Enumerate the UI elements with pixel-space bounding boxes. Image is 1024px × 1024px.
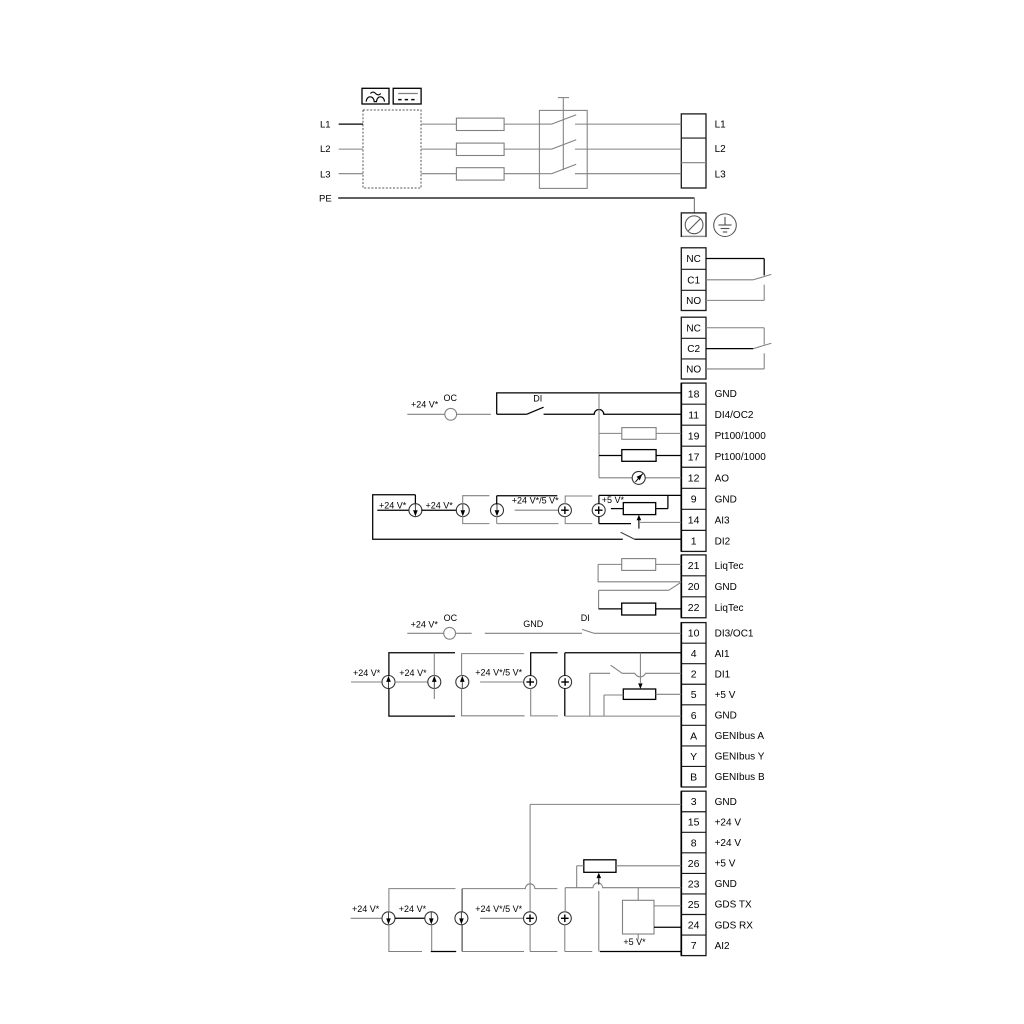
svg-text:+24 V*: +24 V* xyxy=(399,668,427,678)
svg-text:21: 21 xyxy=(688,560,700,572)
svg-text:24: 24 xyxy=(688,919,700,931)
svg-text:23: 23 xyxy=(688,878,700,890)
svg-text:GND: GND xyxy=(715,711,737,722)
svg-text:NO: NO xyxy=(686,365,701,376)
svg-text:+24 V*: +24 V* xyxy=(353,668,381,678)
svg-text:DI3/OC1: DI3/OC1 xyxy=(715,628,754,639)
svg-text:AI2: AI2 xyxy=(715,941,730,952)
svg-text:26: 26 xyxy=(688,858,700,870)
svg-text:L3: L3 xyxy=(320,169,331,180)
svg-text:4: 4 xyxy=(691,648,697,660)
svg-text:Y: Y xyxy=(690,751,697,763)
svg-text:AI3: AI3 xyxy=(715,515,730,526)
svg-text:15: 15 xyxy=(688,817,700,829)
svg-text:3: 3 xyxy=(691,796,697,808)
svg-text:NC: NC xyxy=(686,254,700,265)
svg-text:+24 V*: +24 V* xyxy=(379,500,407,510)
svg-text:Pt100/1000: Pt100/1000 xyxy=(715,452,767,463)
svg-text:GND: GND xyxy=(715,582,737,593)
svg-text:1: 1 xyxy=(691,536,697,548)
svg-text:A: A xyxy=(690,730,697,742)
svg-text:L1: L1 xyxy=(320,120,331,131)
svg-text:7: 7 xyxy=(691,940,697,952)
svg-text:OC: OC xyxy=(444,393,458,403)
svg-text:L3: L3 xyxy=(715,169,727,180)
svg-text:GND: GND xyxy=(715,494,737,505)
svg-text:2: 2 xyxy=(691,669,697,681)
svg-text:+24 V*: +24 V* xyxy=(352,904,380,914)
svg-text:12: 12 xyxy=(688,472,700,484)
svg-text:+24 V*/5 V*: +24 V*/5 V* xyxy=(475,904,522,914)
svg-text:14: 14 xyxy=(688,515,700,527)
svg-text:L2: L2 xyxy=(715,144,727,155)
svg-text:5: 5 xyxy=(691,689,697,701)
svg-text:GND: GND xyxy=(715,879,737,890)
svg-text:+24 V*: +24 V* xyxy=(411,620,439,630)
svg-text:+5 V*: +5 V* xyxy=(602,495,625,505)
svg-text:NC: NC xyxy=(686,323,700,334)
svg-text:18: 18 xyxy=(688,388,700,400)
svg-text:+5 V*: +5 V* xyxy=(623,937,646,947)
svg-text:19: 19 xyxy=(688,430,700,442)
svg-text:+24 V: +24 V xyxy=(715,818,742,829)
svg-text:GENIbus Y: GENIbus Y xyxy=(715,752,765,763)
svg-text:6: 6 xyxy=(691,710,697,722)
svg-text:+24 V*: +24 V* xyxy=(399,904,427,914)
svg-text:LiqTec: LiqTec xyxy=(715,603,744,614)
svg-text:AO: AO xyxy=(715,473,730,484)
svg-text:+24 V*/5 V*: +24 V*/5 V* xyxy=(512,496,559,506)
svg-text:+24 V*/5 V*: +24 V*/5 V* xyxy=(475,668,522,678)
svg-text:AI1: AI1 xyxy=(715,649,730,660)
svg-text:25: 25 xyxy=(688,899,700,911)
svg-text:8: 8 xyxy=(691,837,697,849)
svg-text:+5 V: +5 V xyxy=(715,859,736,870)
svg-text:GENIbus A: GENIbus A xyxy=(715,731,765,742)
svg-text:DI: DI xyxy=(581,613,590,623)
svg-text:C1: C1 xyxy=(687,275,700,286)
svg-text:10: 10 xyxy=(688,628,700,640)
svg-text:9: 9 xyxy=(691,494,697,506)
svg-text:+5 V: +5 V xyxy=(715,690,736,701)
svg-text:GDS RX: GDS RX xyxy=(715,920,754,931)
svg-text:Pt100/1000: Pt100/1000 xyxy=(715,431,767,442)
svg-text:L1: L1 xyxy=(715,120,727,131)
svg-text:+24 V*: +24 V* xyxy=(426,500,454,510)
svg-text:+24 V: +24 V xyxy=(715,838,742,849)
svg-text:+24 V*: +24 V* xyxy=(411,400,439,410)
svg-text:NO: NO xyxy=(686,296,701,307)
svg-text:22: 22 xyxy=(688,602,700,614)
svg-text:20: 20 xyxy=(688,581,700,593)
svg-text:C2: C2 xyxy=(687,344,700,355)
svg-text:11: 11 xyxy=(688,409,699,421)
svg-text:LiqTec: LiqTec xyxy=(715,561,744,572)
svg-text:GND: GND xyxy=(715,389,737,400)
svg-text:17: 17 xyxy=(688,451,700,463)
svg-text:GENIbus B: GENIbus B xyxy=(715,772,765,783)
svg-text:L2: L2 xyxy=(320,144,331,155)
svg-text:DI2: DI2 xyxy=(715,536,731,547)
svg-text:DI1: DI1 xyxy=(715,669,731,680)
svg-text:GND: GND xyxy=(523,619,544,629)
svg-text:GND: GND xyxy=(715,797,737,808)
svg-text:PE: PE xyxy=(319,194,332,205)
svg-text:OC: OC xyxy=(444,613,458,623)
svg-text:B: B xyxy=(690,771,697,783)
svg-text:DI4/OC2: DI4/OC2 xyxy=(715,410,754,421)
svg-text:GDS TX: GDS TX xyxy=(715,900,752,911)
svg-text:DI: DI xyxy=(533,394,542,404)
